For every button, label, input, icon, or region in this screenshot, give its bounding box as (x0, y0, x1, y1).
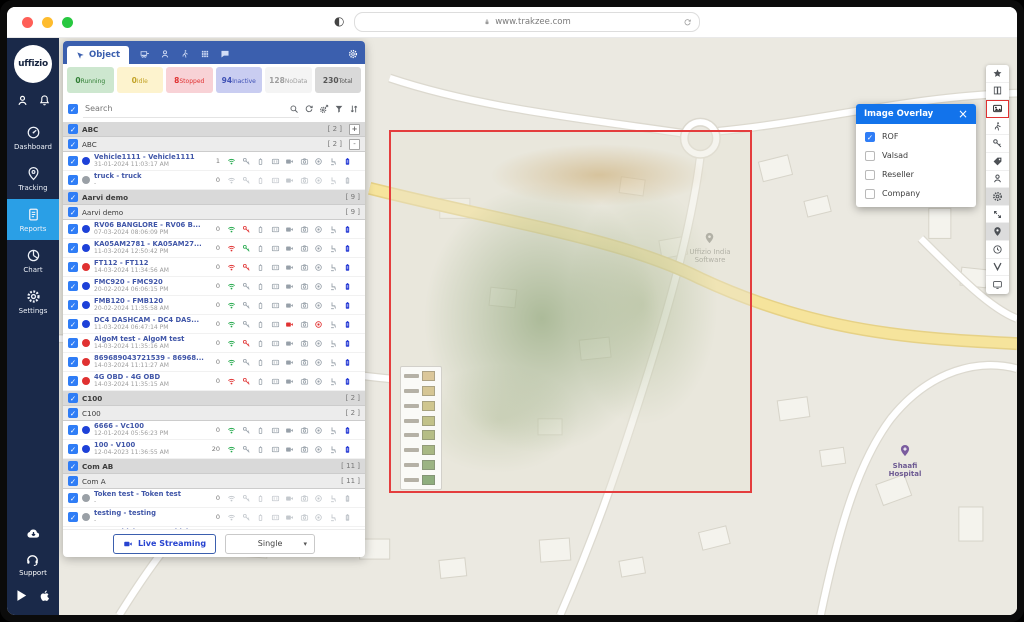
vehicle-checkbox[interactable]: ✓ (68, 512, 78, 522)
record-icon[interactable] (314, 282, 323, 291)
vehicle-name[interactable]: Vehicle1111 - Vehicle1111 (94, 153, 204, 161)
video-icon[interactable] (285, 282, 294, 291)
route-icon[interactable] (271, 263, 280, 272)
device-battery-icon (343, 244, 352, 253)
group-checkbox[interactable]: ✓ (68, 461, 78, 471)
vehicle-name[interactable]: 100 - V100 (94, 441, 204, 449)
expand-button[interactable]: + (349, 124, 360, 135)
seat-icon (329, 339, 338, 348)
vehicle-name[interactable]: testing - testing (94, 509, 204, 517)
minimize-button[interactable] (42, 17, 53, 28)
route-icon[interactable] (271, 244, 280, 253)
group-name: ABC (82, 140, 97, 149)
device-battery-icon (343, 513, 352, 522)
key-icon (242, 513, 251, 522)
vehicle-checkbox[interactable]: ✓ (68, 338, 78, 348)
notifications-bell-icon[interactable] (38, 94, 51, 107)
group-checkbox[interactable]: ✓ (68, 124, 78, 134)
map-tool-history[interactable] (986, 241, 1009, 259)
sidebar-item-reports[interactable]: Reports (7, 199, 59, 240)
vehicle-names: truck - truck- (94, 172, 204, 188)
video-icon[interactable] (285, 358, 294, 367)
record-icon[interactable] (314, 225, 323, 234)
map-tool-poi[interactable] (986, 223, 1009, 241)
record-icon[interactable] (314, 426, 323, 435)
video-icon[interactable] (285, 320, 294, 329)
battery-icon (256, 494, 265, 503)
vehicle-count: 0 (208, 426, 220, 434)
camera-icon[interactable] (300, 339, 309, 348)
map-tool-device-screen[interactable] (986, 276, 1009, 294)
group-name: Aarvi demo (82, 193, 128, 202)
trailer-icon[interactable] (140, 49, 150, 59)
panel-header: Object (63, 41, 365, 64)
vehicle-status-icons (227, 377, 352, 386)
device-battery-icon (343, 176, 352, 185)
browser-window: ◐ www.trakzee.com uffizio DashboardTrack… (0, 0, 1024, 622)
sidebar-item-label: Tracking (18, 184, 47, 192)
key-icon (242, 301, 251, 310)
map-tool-driver[interactable] (986, 171, 1009, 189)
overlay-option-label: Reseller (882, 170, 914, 179)
uffizio-logo: uffizio (14, 45, 52, 83)
stat-label: Stopped (179, 78, 204, 85)
vehicle-last-update: - (94, 517, 204, 525)
map-tool-share-key[interactable] (986, 135, 1009, 153)
vehicle-names: DC4 DASHCAM - DC4 DAS...11-03-2024 06:47… (94, 316, 204, 332)
vehicle-name[interactable]: KA05AM2781 - KA05AM27... (94, 240, 204, 248)
vehicle-row[interactable]: ✓100 - V10012-04-2023 11:36:55 AM20 (63, 440, 365, 459)
record-icon[interactable] (314, 176, 323, 185)
route-icon[interactable] (271, 426, 280, 435)
vehicle-row[interactable]: ✓KA05AM2781 - KA05AM27...11-03-2024 12:5… (63, 239, 365, 258)
vehicle-status-icons (227, 339, 352, 348)
vehicle-name[interactable]: DC4 DASHCAM - DC4 DAS... (94, 316, 204, 324)
camera-icon[interactable] (300, 445, 309, 454)
vehicle-name[interactable]: FMB120 - FMB120 (94, 297, 204, 305)
key-icon (242, 225, 251, 234)
map-tool-pedestrian[interactable] (986, 118, 1009, 136)
video-icon[interactable] (285, 426, 294, 435)
sort-icon[interactable] (349, 104, 359, 114)
key-icon (242, 320, 251, 329)
key-icon (242, 377, 251, 386)
key-icon (242, 358, 251, 367)
sidebar-item-label: Chart (23, 266, 42, 274)
live-streaming-button[interactable]: Live Streaming (113, 534, 216, 554)
gear-send-icon[interactable] (319, 104, 329, 114)
map-tool-favorites[interactable] (986, 65, 1009, 83)
status-dot (82, 263, 90, 271)
vehicle-checkbox[interactable]: ✓ (68, 224, 78, 234)
overlay-option-valsad[interactable]: Valsad (856, 146, 976, 165)
search-row: ✓ (63, 96, 365, 122)
stat-running: 0Running (67, 67, 114, 93)
battery-icon (256, 282, 265, 291)
signal-icon (227, 244, 236, 253)
map-tool-traffic-route[interactable] (986, 259, 1009, 277)
vehicle-row[interactable]: ✓6666 - Vc10012-01-2024 05:56:23 PM0 (63, 421, 365, 440)
record-icon[interactable] (314, 377, 323, 386)
vehicle-name[interactable]: RV06 BANGLORE - RV06 B... (94, 221, 204, 229)
select-all-checkbox[interactable]: ✓ (68, 104, 78, 114)
vehicle-row[interactable]: ✓Token test - Token test-0 (63, 489, 365, 508)
image-overlay-popup: Image Overlay × ✓ROFValsadResellerCompan… (856, 104, 976, 207)
vehicle-name[interactable]: 869689043721539 - 86968... (94, 354, 204, 362)
group-count: [ 9 ] (346, 208, 360, 216)
vehicle-checkbox[interactable]: ✓ (68, 376, 78, 386)
vehicle-last-update: 31-01-2024 11:03:17 AM (94, 161, 204, 169)
vehicle-status-icons (227, 320, 352, 329)
key-icon (242, 244, 251, 253)
vehicle-count: 0 (208, 339, 220, 347)
stat-label: Idle (137, 78, 148, 85)
vehicle-checkbox[interactable]: ✓ (68, 262, 78, 272)
vehicle-name[interactable]: Token test - Token test (94, 490, 204, 498)
close-icon[interactable]: × (958, 107, 968, 121)
vehicle-count: 0 (208, 301, 220, 309)
stat-value: 128 (269, 76, 285, 85)
camera-icon[interactable] (300, 320, 309, 329)
battery-icon (256, 445, 265, 454)
camera-icon[interactable] (300, 225, 309, 234)
video-icon[interactable] (285, 176, 294, 185)
privacy-shield-icon[interactable]: ◐ (334, 15, 344, 27)
vehicle-checkbox[interactable]: ✓ (68, 444, 78, 454)
route-icon[interactable] (271, 358, 280, 367)
group-row[interactable]: ✓Com AB[ 11 ] (63, 459, 365, 474)
expand-map-icon (992, 209, 1003, 220)
camera-icon[interactable] (300, 176, 309, 185)
vehicle-names: FMC920 - FMC92020-02-2024 06:06:15 PM (94, 278, 204, 294)
overlay-option-label: Valsad (882, 151, 908, 160)
account-icon[interactable] (16, 94, 29, 107)
group-checkbox[interactable]: ✓ (68, 192, 78, 202)
battery-icon (256, 225, 265, 234)
overlay-option-checkbox[interactable]: ✓ (865, 132, 875, 142)
route-icon[interactable] (271, 282, 280, 291)
vehicle-list: ✓ABC[ 2 ]+✓ABC[ 2 ]-✓Vehicle1111 - Vehic… (63, 122, 365, 529)
vehicle-row[interactable]: ✓FT112 - FT11214-03-2024 11:34:56 AM0 (63, 258, 365, 277)
video-icon[interactable] (285, 244, 294, 253)
subgroup-row[interactable]: ✓ABC[ 2 ]- (63, 137, 365, 152)
device-screen-icon (992, 279, 1003, 290)
battery-icon (256, 157, 265, 166)
search-icon[interactable] (289, 104, 299, 114)
vehicle-last-update: 14-03-2024 11:11:27 AM (94, 362, 204, 370)
video-icon[interactable] (285, 157, 294, 166)
device-battery-icon (343, 282, 352, 291)
overlay-option-checkbox[interactable] (865, 189, 875, 199)
seat-icon (329, 225, 338, 234)
device-battery-icon (343, 426, 352, 435)
cluster-settings-icon (992, 191, 1003, 202)
device-battery-icon (343, 339, 352, 348)
expand-button[interactable]: - (349, 139, 360, 150)
seat-icon (329, 494, 338, 503)
record-icon[interactable] (314, 263, 323, 272)
signal-icon (227, 494, 236, 503)
key-icon (242, 157, 251, 166)
seat-icon (329, 320, 338, 329)
traffic-route-icon (992, 261, 1003, 272)
share-key-icon (992, 138, 1003, 149)
apple-icon[interactable] (37, 588, 52, 603)
grid-icon[interactable] (200, 49, 210, 59)
seat-icon (329, 282, 338, 291)
refresh-icon[interactable] (304, 104, 314, 114)
pin-icon (26, 166, 41, 181)
group-checkbox[interactable]: ✓ (68, 393, 78, 403)
camera-icon[interactable] (300, 358, 309, 367)
camera-icon[interactable] (300, 244, 309, 253)
vehicle-names: KA05AM2781 - KA05AM27...11-03-2024 12:50… (94, 240, 204, 256)
vehicle-count: 0 (208, 494, 220, 502)
key-icon (242, 339, 251, 348)
video-icon (123, 539, 133, 549)
record-icon[interactable] (314, 494, 323, 503)
close-button[interactable] (22, 17, 33, 28)
stat-stopped: 8Stopped (166, 67, 213, 93)
chat-icon[interactable] (220, 49, 230, 59)
map-toolbar (986, 65, 1009, 294)
overlay-option-label: Company (882, 189, 920, 198)
subgroup-row[interactable]: ✓C100[ 2 ] (63, 406, 365, 421)
vehicle-checkbox[interactable]: ✓ (68, 425, 78, 435)
vehicle-last-update: - (94, 498, 204, 506)
vehicle-name[interactable]: 6666 - Vc100 (94, 422, 204, 430)
sidebar-item-settings[interactable]: Settings (7, 281, 59, 322)
map-tool-street-view[interactable] (986, 83, 1009, 101)
group-checkbox[interactable]: ✓ (68, 207, 78, 217)
group-row[interactable]: ✓Aarvi demo[ 9 ] (63, 190, 365, 205)
vehicle-row[interactable]: ✓FMB120 - FMB12020-02-2024 11:35:58 AM0 (63, 296, 365, 315)
group-name: Aarvi demo (82, 208, 123, 217)
group-row[interactable]: ✓ABC[ 2 ]+ (63, 122, 365, 137)
vehicle-names: 6666 - Vc10012-01-2024 05:56:23 PM (94, 422, 204, 438)
seat-icon (329, 445, 338, 454)
vehicle-row[interactable]: ✓testing - testing-0 (63, 508, 365, 527)
url-text: www.trakzee.com (495, 17, 571, 27)
vehicle-name[interactable]: AlgoM test - AlgoM test (94, 335, 204, 343)
vehicle-name[interactable]: FT112 - FT112 (94, 259, 204, 267)
zoom-button[interactable] (62, 17, 73, 28)
camera-icon[interactable] (300, 494, 309, 503)
route-icon[interactable] (271, 377, 280, 386)
video-icon[interactable] (285, 301, 294, 310)
stat-label: Running (81, 78, 106, 85)
overlay-option-company[interactable]: Company (856, 184, 976, 203)
overlay-option-checkbox[interactable] (865, 170, 875, 180)
camera-icon[interactable] (300, 263, 309, 272)
vehicle-last-update: 14-03-2024 11:35:15 AM (94, 381, 204, 389)
vehicle-names: 100 - V10012-04-2023 11:36:55 AM (94, 441, 204, 457)
vehicle-name[interactable]: 4G OBD - 4G OBD (94, 373, 204, 381)
vehicle-checkbox[interactable]: ✓ (68, 281, 78, 291)
vehicle-row[interactable]: ✓4G OBD - 4G OBD14-03-2024 11:35:15 AM0 (63, 372, 365, 391)
map-tool-image-overlay[interactable] (986, 100, 1009, 118)
vehicle-last-update: 20-02-2024 06:06:15 PM (94, 286, 204, 294)
record-icon[interactable] (314, 445, 323, 454)
group-name: Com AB (82, 462, 113, 471)
group-count: [ 2 ] (346, 394, 360, 402)
device-battery-icon (343, 377, 352, 386)
person-icon[interactable] (160, 49, 170, 59)
vehicle-status-icons (227, 301, 352, 310)
record-icon[interactable] (314, 339, 323, 348)
camera-icon[interactable] (300, 157, 309, 166)
vehicle-row[interactable]: ✓FMC920 - FMC92020-02-2024 06:06:15 PM0 (63, 277, 365, 296)
device-battery-icon (343, 320, 352, 329)
vehicle-row[interactable]: ✓Vehicle1111 - Vehicle111131-01-2024 11:… (63, 152, 365, 171)
device-battery-icon (343, 358, 352, 367)
cloud-download-icon[interactable] (26, 526, 41, 541)
record-icon[interactable] (314, 301, 323, 310)
vehicle-names: FMB120 - FMB12020-02-2024 11:35:58 AM (94, 297, 204, 313)
search-input[interactable] (83, 103, 289, 114)
poi-label-shaafi: Shaafi Hospital (881, 462, 929, 479)
vehicle-checkbox[interactable]: ✓ (68, 493, 78, 503)
signal-icon (227, 263, 236, 272)
image-overlay-region (389, 130, 752, 493)
video-icon[interactable] (285, 339, 294, 348)
address-bar[interactable]: www.trakzee.com (354, 12, 700, 32)
record-icon[interactable] (314, 244, 323, 253)
driver-icon[interactable] (180, 49, 190, 59)
group-name: ABC (82, 125, 98, 134)
vehicle-status-icons (227, 358, 352, 367)
device-battery-icon (343, 494, 352, 503)
vehicle-checkbox[interactable]: ✓ (68, 357, 78, 367)
vehicle-count: 0 (208, 225, 220, 233)
vehicle-row[interactable]: ✓truck - truck-0 (63, 171, 365, 190)
vehicle-status-icons (227, 426, 352, 435)
popup-header: Image Overlay × (856, 104, 976, 124)
camera-icon[interactable] (300, 513, 309, 522)
camera-icon[interactable] (300, 377, 309, 386)
stat-value: 230 (323, 76, 339, 85)
key-icon (242, 176, 251, 185)
route-icon[interactable] (271, 513, 280, 522)
status-dot (82, 282, 90, 290)
group-checkbox[interactable]: ✓ (68, 139, 78, 149)
record-icon[interactable] (314, 157, 323, 166)
key-icon (242, 282, 251, 291)
route-icon[interactable] (271, 301, 280, 310)
key-icon (242, 445, 251, 454)
signal-icon (227, 445, 236, 454)
video-icon[interactable] (285, 445, 294, 454)
status-dot (82, 358, 90, 366)
camera-icon[interactable] (300, 426, 309, 435)
tab-object[interactable]: Object (67, 46, 129, 64)
record-icon[interactable] (314, 513, 323, 522)
vehicle-checkbox[interactable]: ✓ (68, 243, 78, 253)
vehicle-row[interactable]: ✓DC4 DASHCAM - DC4 DAS...11-03-2024 06:4… (63, 315, 365, 334)
status-dot (82, 176, 90, 184)
signal-icon (227, 301, 236, 310)
sidebar-item-dashboard[interactable]: Dashboard (7, 117, 59, 158)
route-icon[interactable] (271, 339, 280, 348)
vehicle-names: AlgoM test - AlgoM test14-03-2024 11:35:… (94, 335, 204, 351)
video-icon[interactable] (285, 494, 294, 503)
vehicle-row[interactable]: ✓869689043721539 - 86968...14-03-2024 11… (63, 353, 365, 372)
video-icon[interactable] (285, 225, 294, 234)
chevron-down-icon: ▾ (304, 540, 308, 548)
overlay-option-checkbox[interactable] (865, 151, 875, 161)
vehicle-row[interactable]: ✓AlgoM test - AlgoM test14-03-2024 11:35… (63, 334, 365, 353)
overlay-option-rof[interactable]: ✓ROF (856, 127, 976, 146)
camera-icon[interactable] (300, 282, 309, 291)
vehicle-count: 0 (208, 263, 220, 271)
route-icon[interactable] (271, 176, 280, 185)
panel-settings-gear-icon[interactable] (348, 49, 358, 59)
vehicle-names: FT112 - FT11214-03-2024 11:34:56 AM (94, 259, 204, 275)
record-icon[interactable] (314, 358, 323, 367)
vehicle-count: 1 (208, 157, 220, 165)
group-name: C100 (82, 394, 102, 403)
overlay-option-reseller[interactable]: Reseller (856, 165, 976, 184)
map-tool-cluster-settings[interactable] (986, 188, 1009, 206)
vehicle-name[interactable]: truck - truck (94, 172, 204, 180)
subgroup-row[interactable]: ✓Com A[ 11 ] (63, 474, 365, 489)
group-checkbox[interactable]: ✓ (68, 408, 78, 418)
vehicle-status-icons (227, 445, 352, 454)
vehicle-checkbox[interactable]: ✓ (68, 319, 78, 329)
subgroup-row[interactable]: ✓Aarvi demo[ 9 ] (63, 205, 365, 220)
map-tool-label-tag[interactable] (986, 153, 1009, 171)
reload-icon[interactable] (683, 18, 692, 27)
video-icon[interactable] (285, 513, 294, 522)
route-icon[interactable] (271, 445, 280, 454)
label-tag-icon (992, 156, 1003, 167)
route-icon[interactable] (271, 494, 280, 503)
filter-icon[interactable] (334, 104, 344, 114)
vehicle-name[interactable]: FMC920 - FMC920 (94, 278, 204, 286)
status-dot (82, 339, 90, 347)
lock-icon (483, 18, 491, 26)
route-icon[interactable] (271, 320, 280, 329)
vehicle-checkbox[interactable]: ✓ (68, 175, 78, 185)
route-icon[interactable] (271, 157, 280, 166)
group-name: Com A (82, 477, 106, 486)
seat-icon (329, 301, 338, 310)
route-icon[interactable] (271, 225, 280, 234)
browser-chrome: ◐ www.trakzee.com (7, 7, 1017, 38)
vehicle-count: 0 (208, 176, 220, 184)
video-icon[interactable] (285, 263, 294, 272)
sidebar-item-chart[interactable]: Chart (7, 240, 59, 281)
vehicle-row[interactable]: ✓RV06 BANGLORE - RV06 B...07-03-2024 08:… (63, 220, 365, 239)
map-tool-expand-map[interactable] (986, 206, 1009, 224)
google-play-icon[interactable] (14, 588, 29, 603)
vehicle-last-update: 07-03-2024 08:06:09 PM (94, 229, 204, 237)
group-row[interactable]: ✓C100[ 2 ] (63, 391, 365, 406)
vehicle-checkbox[interactable]: ✓ (68, 156, 78, 166)
stream-mode-select[interactable]: Single ▾ (225, 534, 315, 554)
record-icon[interactable] (314, 320, 323, 329)
device-battery-icon (343, 301, 352, 310)
camera-icon[interactable] (300, 301, 309, 310)
pie-icon (26, 248, 41, 263)
device-battery-icon (343, 445, 352, 454)
video-icon[interactable] (285, 377, 294, 386)
sidebar-item-tracking[interactable]: Tracking (7, 158, 59, 199)
vehicle-checkbox[interactable]: ✓ (68, 300, 78, 310)
group-checkbox[interactable]: ✓ (68, 476, 78, 486)
status-dot (82, 225, 90, 233)
sidebar-item-support[interactable]: Support (19, 552, 47, 577)
